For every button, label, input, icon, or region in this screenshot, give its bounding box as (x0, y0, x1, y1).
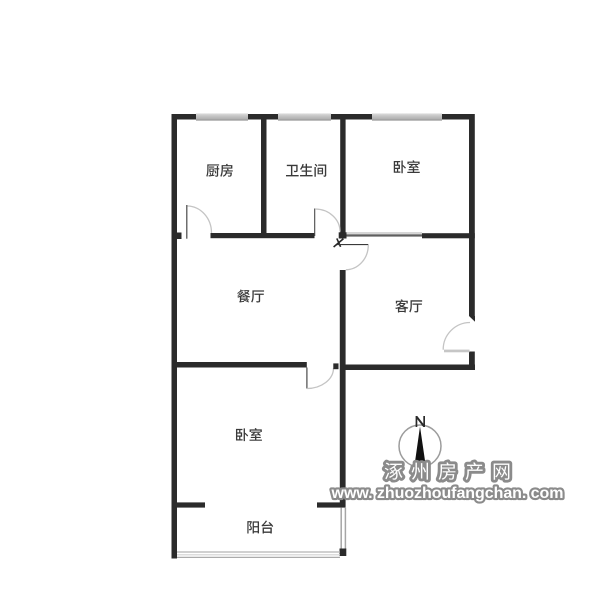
svg-text:www. zhuozhoufangchan. com: www. zhuozhoufangchan. com (331, 485, 564, 502)
